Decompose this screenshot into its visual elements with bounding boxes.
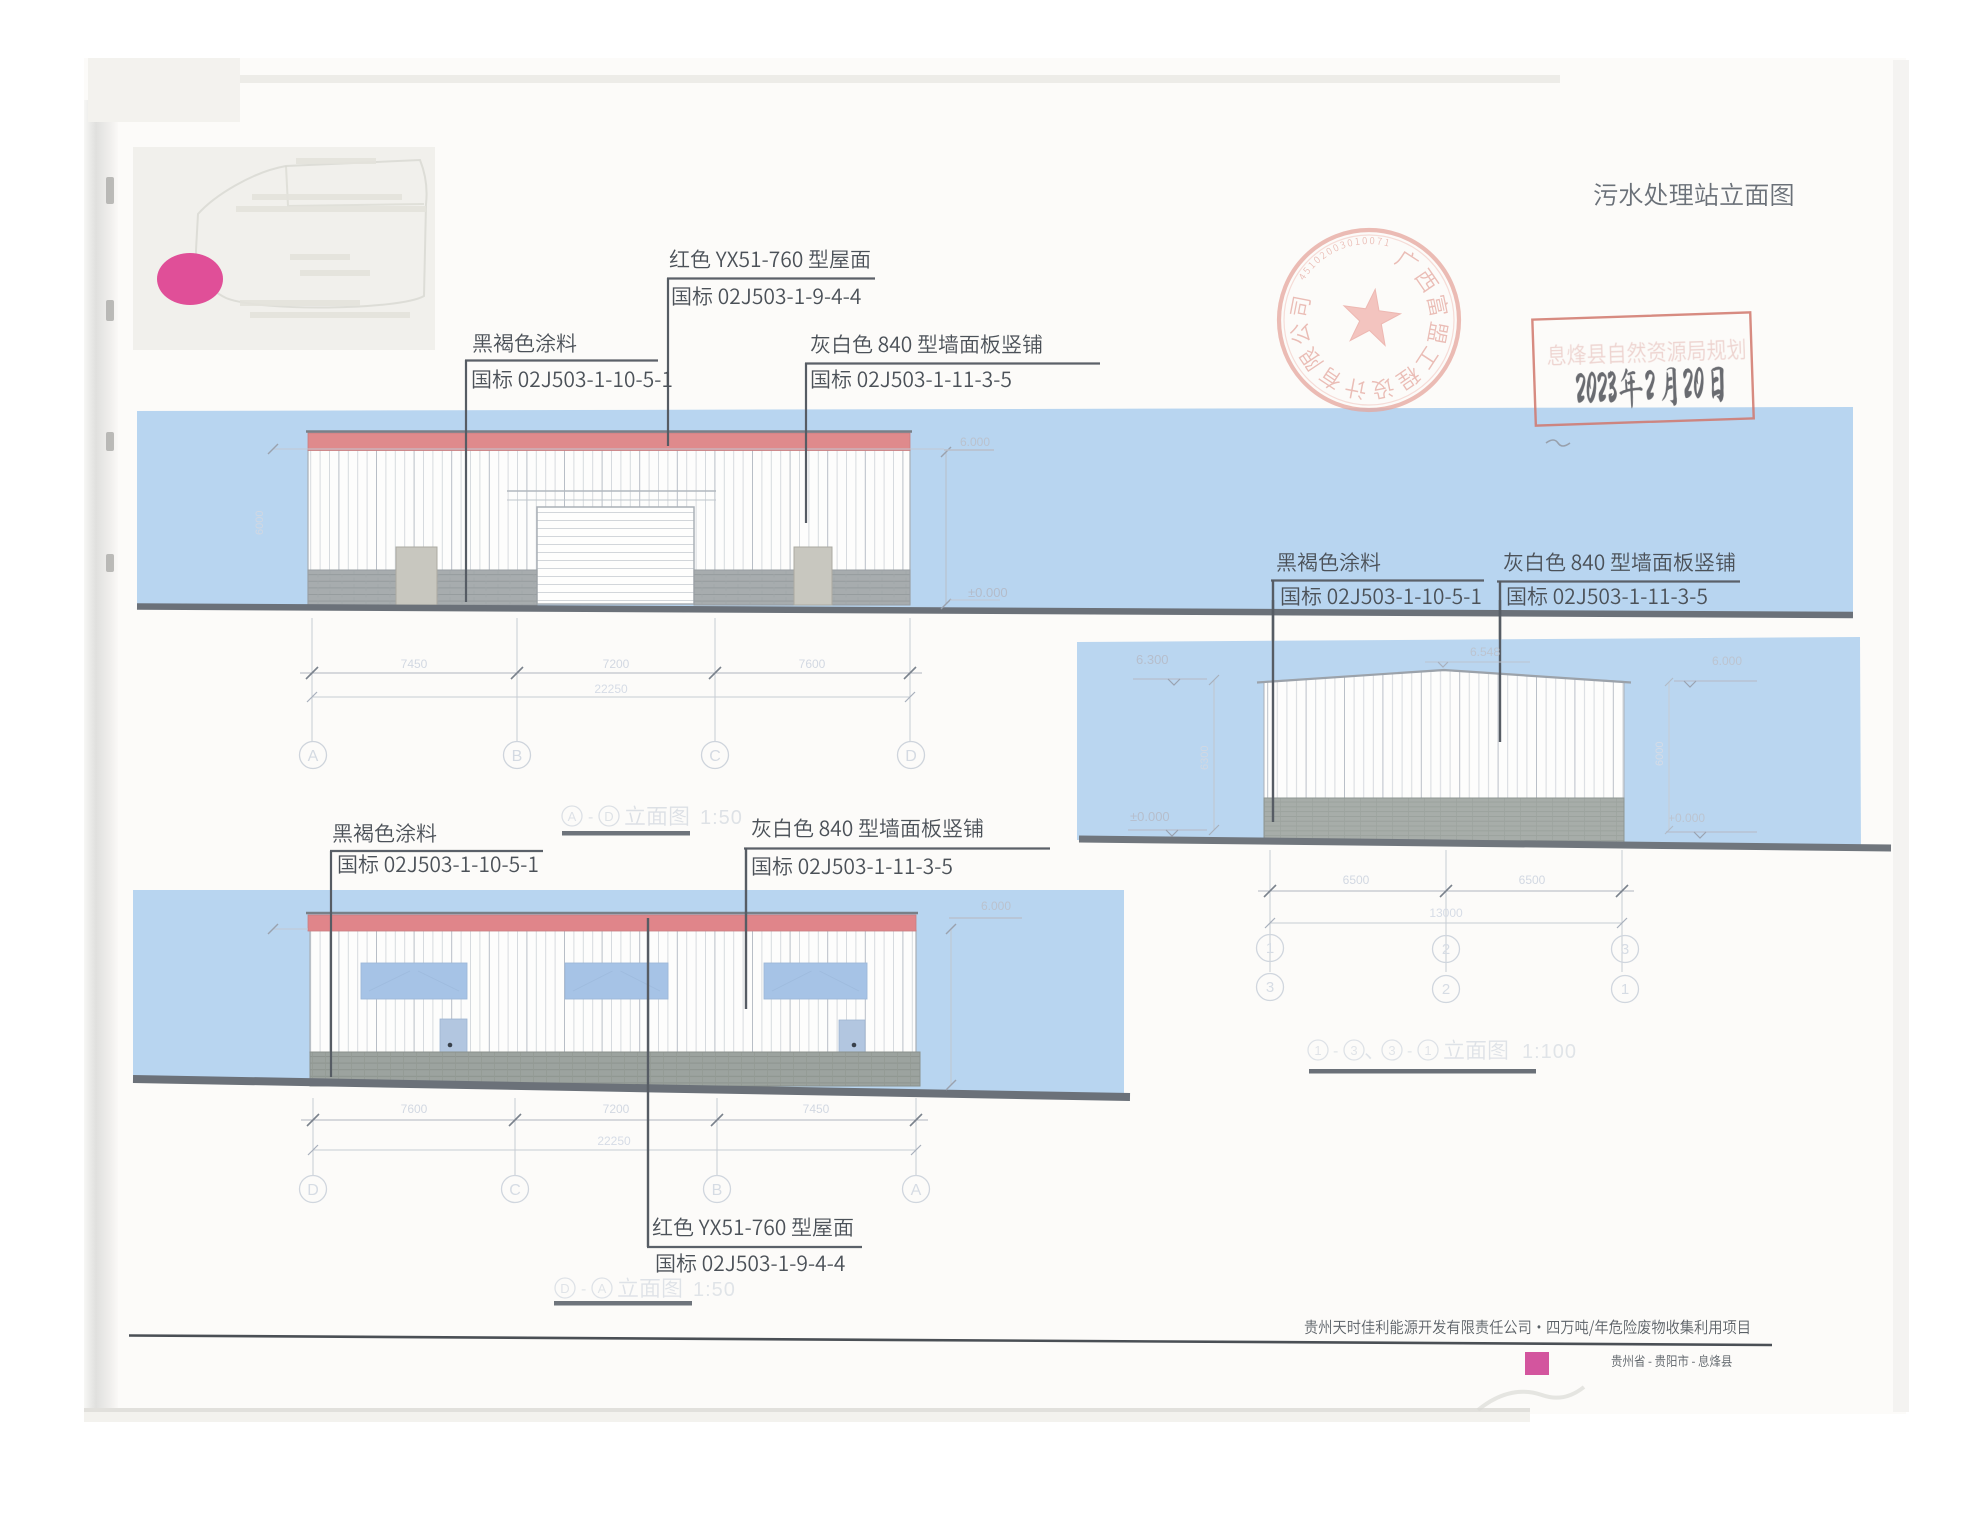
svg-text:1: 1 (1314, 1043, 1321, 1058)
svg-text:1: 1 (1424, 1043, 1431, 1058)
svg-text:D: D (905, 748, 917, 765)
svg-text:D: D (604, 809, 613, 824)
svg-text:+0.000: +0.000 (1668, 811, 1705, 825)
svg-text:A: A (308, 748, 319, 765)
svg-text:C: C (709, 748, 721, 765)
svg-text:6.000: 6.000 (1712, 654, 1742, 668)
svg-text:±0.000: ±0.000 (1130, 809, 1170, 824)
svg-text:7450: 7450 (401, 657, 428, 671)
svg-text:B: B (712, 1182, 723, 1199)
svg-text:3: 3 (1266, 979, 1274, 996)
svg-text:2: 2 (1442, 981, 1450, 998)
svg-text:2: 2 (1442, 941, 1450, 958)
svg-text:22250: 22250 (594, 682, 628, 696)
svg-text:6000: 6000 (254, 511, 266, 535)
svg-text:13000: 13000 (1429, 906, 1463, 920)
svg-text:6300: 6300 (1199, 746, 1211, 770)
svg-text:D: D (560, 1281, 569, 1296)
svg-text:1: 1 (1621, 981, 1629, 998)
svg-text:-: - (581, 1281, 586, 1298)
svg-text:7450: 7450 (803, 1102, 830, 1116)
svg-text:6500: 6500 (1519, 873, 1546, 887)
svg-text:1:50: 1:50 (693, 1279, 736, 1301)
svg-text:3: 3 (1350, 1043, 1357, 1058)
svg-text:-: - (588, 809, 593, 826)
svg-text:6.000: 6.000 (981, 899, 1011, 913)
svg-text:-: - (1407, 1043, 1412, 1060)
svg-text:7600: 7600 (799, 657, 826, 671)
svg-text:3: 3 (1621, 941, 1629, 958)
svg-text:-: - (1333, 1043, 1338, 1060)
svg-text:6.300: 6.300 (1136, 652, 1169, 667)
svg-text:3: 3 (1388, 1043, 1395, 1058)
svg-text:A: A (911, 1182, 922, 1199)
svg-text:D: D (307, 1182, 319, 1199)
svg-text:7600: 7600 (401, 1102, 428, 1116)
svg-text:6.548: 6.548 (1470, 645, 1500, 659)
svg-text:6.000: 6.000 (960, 435, 990, 449)
svg-text:6000: 6000 (1654, 742, 1666, 766)
svg-text:C: C (509, 1182, 521, 1199)
svg-text:7200: 7200 (603, 1102, 630, 1116)
svg-text:1:50: 1:50 (700, 807, 743, 829)
svg-text:±0.000: ±0.000 (968, 585, 1008, 600)
svg-text:22250: 22250 (597, 1134, 631, 1148)
svg-text:A: A (568, 809, 577, 824)
svg-text:1:100: 1:100 (1522, 1041, 1577, 1063)
svg-text:7200: 7200 (603, 657, 630, 671)
svg-text:B: B (512, 748, 523, 765)
svg-text:A: A (598, 1281, 607, 1296)
svg-text:1: 1 (1266, 940, 1274, 957)
svg-text:6500: 6500 (1343, 873, 1370, 887)
